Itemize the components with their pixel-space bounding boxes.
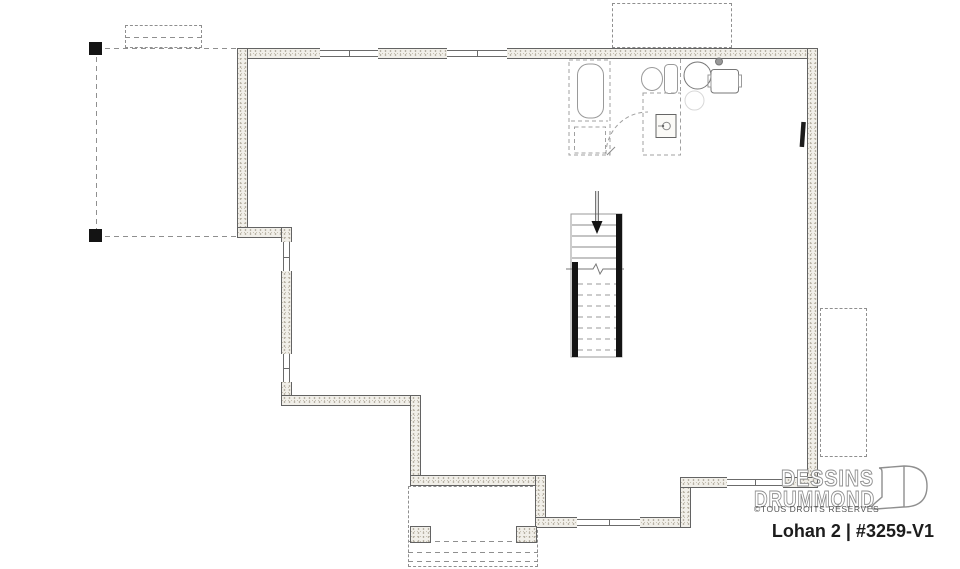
- staircase: [566, 191, 624, 357]
- floor-drain-icon: [685, 91, 704, 110]
- logo: DESSINS DRUMMOND ©TOUS DROITS RÉSERVÉS L…: [754, 465, 934, 541]
- utility-area: [684, 58, 806, 147]
- future-bathroom: [569, 59, 681, 155]
- stair-treads-solid: [572, 225, 616, 258]
- stair-wall-left: [572, 262, 578, 357]
- logo-d-icon: [872, 466, 927, 509]
- stair-wall-right: [616, 214, 622, 357]
- rights-text: ©TOUS DROITS RÉSERVÉS: [754, 504, 879, 514]
- washer-icon: [708, 58, 742, 93]
- plan-svg: DESSINS DRUMMOND ©TOUS DROITS RÉSERVÉS L…: [0, 0, 960, 569]
- water-heater-icon: [684, 62, 711, 89]
- electrical-panel-icon: [800, 122, 806, 147]
- stair-direction-arrow: [592, 191, 603, 234]
- door-swing-icon: [606, 112, 648, 155]
- toilet-icon: [642, 65, 678, 94]
- stair-treads-below: [578, 284, 616, 350]
- bathtub-icon: [569, 60, 610, 155]
- plan-title: Lohan 2 | #3259-V1: [772, 521, 934, 541]
- floor-plan-canvas: DESSINS DRUMMOND ©TOUS DROITS RÉSERVÉS L…: [0, 0, 960, 569]
